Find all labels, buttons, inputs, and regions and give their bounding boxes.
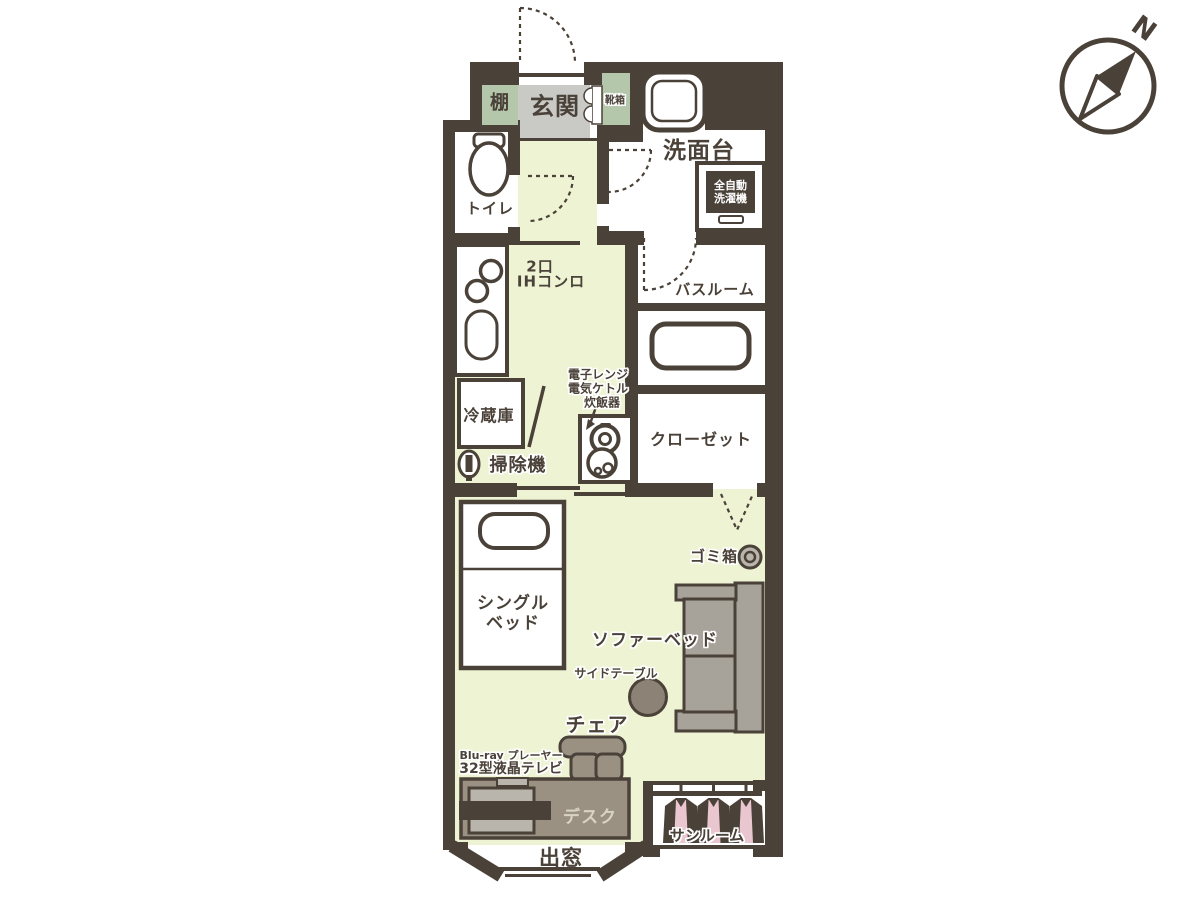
bathtub-icon: [652, 324, 749, 368]
side-table-icon: [630, 679, 667, 716]
floor-plan: 棚 玄関 靴箱 洗面台 全自動 洗濯機 トイレ 2口 IHコンロ バスルーム 冷…: [0, 0, 1201, 901]
bay-window-label: 出窓: [539, 842, 583, 872]
stove-label-2: IHコンロ: [517, 271, 585, 292]
hallway-floor: [518, 138, 597, 245]
washroom-door-arc: [609, 150, 651, 192]
trash-box-icon: [739, 546, 761, 568]
washer-label-2: 洗濯機: [714, 190, 747, 206]
washbasin-icon: [643, 72, 705, 130]
tv-label: 32型液晶テレビ: [459, 758, 562, 778]
sofa-bed-icon: [676, 583, 763, 732]
tv-screen-icon: [459, 801, 551, 820]
single-bed-label-2: ベッド: [486, 609, 540, 634]
entrance-label: 玄関: [530, 87, 580, 122]
appliance-stand-icon: [580, 404, 632, 482]
trash-box-label: ゴミ箱: [690, 546, 738, 567]
fridge-label: 冷蔵庫: [463, 402, 514, 426]
desk-label: デスク: [563, 803, 617, 828]
side-table-label: サイドテーブル: [574, 665, 657, 682]
sofa-bed-label: ソファーベッド: [592, 626, 718, 651]
compass-icon: [1062, 40, 1154, 132]
pillow-icon: [480, 514, 548, 548]
kitchen-sink-icon: [466, 311, 497, 359]
chair-icon: [560, 737, 625, 780]
chair-label: チェア: [566, 709, 629, 738]
toilet-label: トイレ: [466, 198, 514, 219]
pipe-space: [705, 85, 765, 130]
bathroom-label: バスルーム: [675, 279, 755, 300]
bluray-player-icon: [497, 778, 528, 786]
toilet-icon: [470, 134, 508, 195]
ih-burner-icon: [481, 261, 502, 282]
appliance-label-3: 炊飯器: [584, 394, 620, 411]
kitchen-counter-icon: [455, 245, 507, 375]
single-bed-icon: [461, 502, 564, 668]
shelf-label: 棚: [490, 88, 510, 115]
rice-cooker-icon: [588, 449, 616, 477]
ih-burner-icon: [467, 281, 488, 302]
sunroom-label: サンルーム: [670, 825, 745, 846]
shoe-box-label: 靴箱: [605, 92, 625, 107]
vacuum-label: 掃除機: [490, 451, 547, 477]
closet-label: クローゼット: [650, 426, 752, 450]
entrance-door-arc: [520, 8, 575, 63]
washstand-label: 洗面台: [663, 131, 735, 165]
floor-plan-drawing: [0, 0, 1201, 901]
